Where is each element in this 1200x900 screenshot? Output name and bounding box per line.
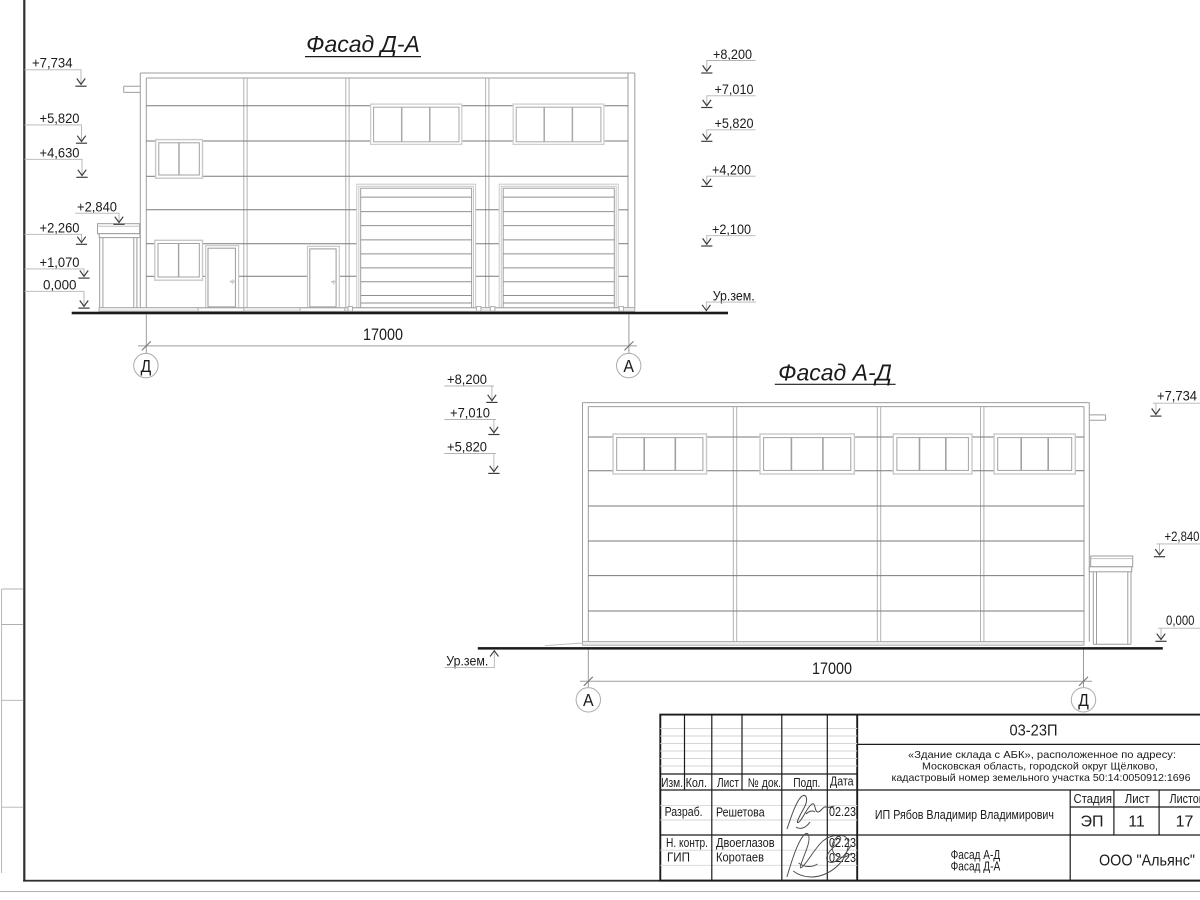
svg-text:Стадия: Стадия: [1074, 792, 1113, 806]
svg-text:Лист: Лист: [717, 776, 739, 790]
svg-text:Ур.зем.: Ур.зем.: [713, 287, 755, 303]
svg-text:Ур.зем.: Ур.зем.: [446, 652, 488, 668]
svg-text:Московская область, городской: Московская область, городской округ Щёлк…: [922, 761, 1158, 773]
svg-text:Дата: Дата: [830, 775, 854, 789]
svg-text:+5,820: +5,820: [447, 439, 487, 455]
svg-text:Кол.: Кол.: [686, 776, 707, 790]
svg-text:+8,200: +8,200: [713, 46, 752, 62]
svg-text:кадастровый номер земельного у: кадастровый номер земельного участка 50:…: [892, 772, 1191, 784]
svg-text:+2,100: +2,100: [712, 221, 751, 237]
svg-text:+8,200: +8,200: [447, 371, 487, 387]
svg-text:+5,820: +5,820: [40, 110, 80, 126]
svg-text:02.23: 02.23: [829, 805, 856, 819]
svg-text:Листов: Листов: [1170, 792, 1200, 806]
svg-text:02.23: 02.23: [829, 851, 856, 865]
svg-text:ГИП: ГИП: [667, 851, 690, 865]
svg-text:Лист: Лист: [1125, 792, 1150, 806]
svg-text:03-23П: 03-23П: [1010, 723, 1058, 740]
svg-text:17000: 17000: [812, 659, 852, 678]
svg-text:+2,260: +2,260: [40, 220, 80, 236]
svg-text:+7,010: +7,010: [450, 405, 490, 421]
svg-text:А: А: [583, 690, 594, 710]
svg-text:ИП Рябов Владимир Владимирович: ИП Рябов Владимир Владимирович: [875, 808, 1054, 822]
svg-text:ЭП: ЭП: [1081, 814, 1104, 831]
svg-text:11: 11: [1128, 814, 1145, 831]
svg-text:ООО "Альянс": ООО "Альянс": [1099, 853, 1195, 870]
svg-text:+7,734: +7,734: [1157, 388, 1197, 404]
svg-text:Подп.: Подп.: [793, 776, 820, 790]
svg-text:Д: Д: [141, 356, 152, 376]
svg-text:Д: Д: [1078, 690, 1089, 710]
svg-text:«Здание склада с АБК», располо: «Здание склада с АБК», расположенное по …: [908, 749, 1176, 761]
svg-text:Разраб.: Разраб.: [665, 805, 703, 819]
svg-text:+1,070: +1,070: [40, 254, 80, 270]
svg-text:+4,200: +4,200: [712, 162, 751, 178]
svg-text:А: А: [623, 356, 634, 376]
svg-text:0,000: 0,000: [1166, 612, 1195, 628]
svg-text:0,000: 0,000: [43, 277, 77, 293]
svg-text:+2,840: +2,840: [1165, 528, 1200, 544]
svg-text:Двоеглазов: Двоеглазов: [716, 836, 775, 850]
svg-text:Фасад Д-А: Фасад Д-А: [951, 860, 1001, 874]
svg-text:Решетова: Решетова: [716, 806, 765, 820]
svg-text:+4,630: +4,630: [40, 145, 80, 161]
svg-text:+7,010: +7,010: [715, 81, 754, 97]
svg-text:+2,840: +2,840: [77, 199, 117, 215]
svg-text:Фасад А-Д: Фасад А-Д: [778, 360, 892, 386]
svg-text:Н. контр.: Н. контр.: [666, 836, 708, 850]
svg-text:Коротаев: Коротаев: [716, 851, 764, 865]
svg-text:Изм.: Изм.: [661, 776, 683, 790]
svg-text:№ док.: № док.: [748, 776, 781, 790]
svg-text:17: 17: [1176, 814, 1194, 831]
svg-text:Фасад Д-А: Фасад Д-А: [306, 31, 420, 57]
svg-text:+7,734: +7,734: [32, 55, 73, 71]
svg-text:17000: 17000: [363, 325, 403, 344]
svg-text:+5,820: +5,820: [715, 115, 754, 131]
